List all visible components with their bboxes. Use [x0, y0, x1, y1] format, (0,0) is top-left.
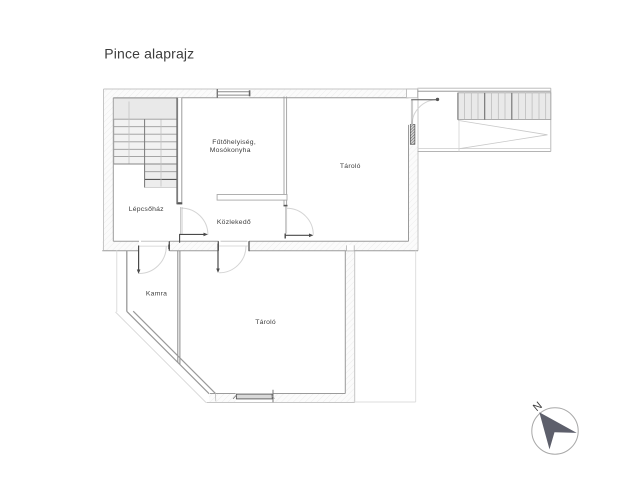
svg-text:Közlekedő: Közlekedő: [217, 219, 251, 226]
svg-text:Lépcsőház: Lépcsőház: [129, 206, 164, 213]
svg-text:Tároló: Tároló: [340, 163, 361, 170]
svg-text:Tároló: Tároló: [255, 319, 276, 326]
svg-text:Fűtőhelyiség,: Fűtőhelyiség,: [212, 139, 256, 146]
svg-text:Pince alaprajz: Pince alaprajz: [104, 45, 194, 61]
svg-text:Kamra: Kamra: [146, 291, 167, 298]
svg-text:Mosókonyha: Mosókonyha: [210, 147, 251, 154]
